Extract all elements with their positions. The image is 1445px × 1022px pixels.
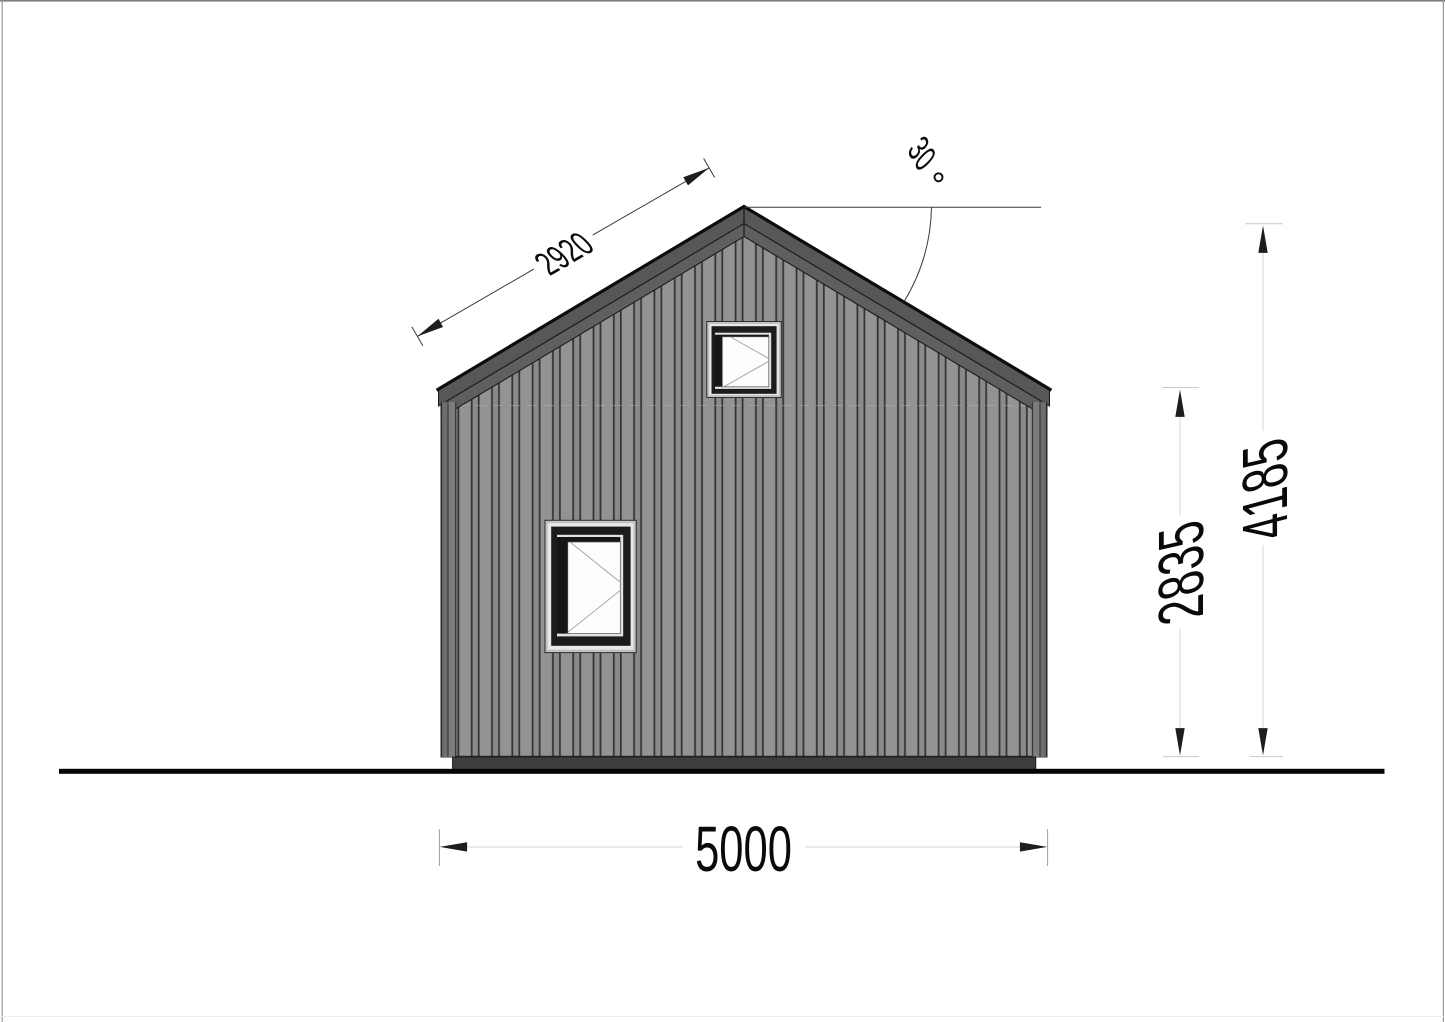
svg-text:4185: 4185 xyxy=(1229,431,1300,550)
svg-text:2835: 2835 xyxy=(1145,513,1216,632)
svg-text:5000: 5000 xyxy=(695,813,792,886)
